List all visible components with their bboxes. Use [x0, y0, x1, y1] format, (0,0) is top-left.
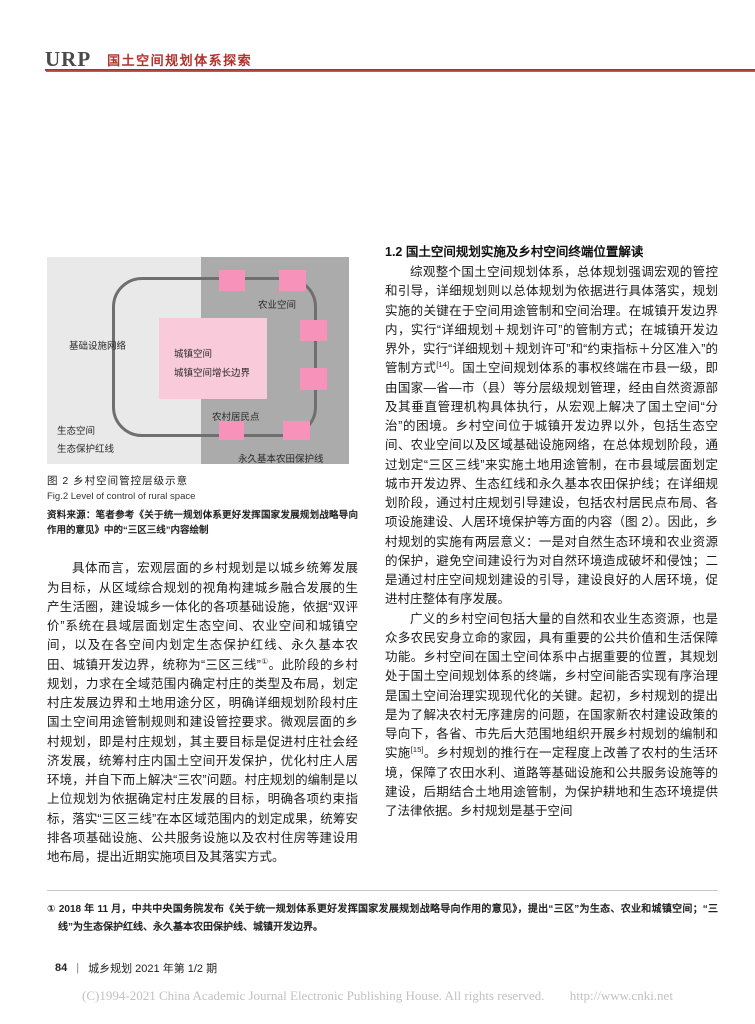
- journal-logo: URP: [45, 50, 91, 71]
- figure-source-note: 资料来源：笔者参考《关于统一规划体系更好发挥国家发展规划战略导向作用的意见》中的…: [47, 508, 358, 538]
- page-number: 84: [55, 962, 67, 974]
- journal-page: URP 国土空间规划体系探索 城镇空间 城镇空间增长边界 农业空间 基础设施网: [0, 0, 755, 1024]
- journal-issue: 城乡规划 2021 年第 1/2 期: [88, 960, 217, 976]
- pink-square: [279, 270, 306, 291]
- agricultural-space-label: 农业空间: [258, 297, 296, 311]
- figure-2: 城镇空间 城镇空间增长边界 农业空间 基础设施网络 农村居民点 生态空间 生态保…: [47, 257, 358, 538]
- ecological-space-label: 生态空间: [57, 423, 95, 437]
- pink-square: [300, 368, 327, 390]
- section-heading: 1.2 国土空间规划实施及乡村空间终端位置解读: [385, 241, 718, 260]
- page-footer: 84 | 城乡规划 2021 年第 1/2 期: [55, 960, 217, 976]
- figure-caption-zh: 图 2 乡村空间管控层级示意: [47, 473, 358, 488]
- figure-caption-en: Fig.2 Level of control of rural space: [47, 491, 358, 502]
- figure-caption: 图 2 乡村空间管控层级示意 Fig.2 Level of control of…: [47, 473, 358, 538]
- copyright-text: (C)1994-2021 China Academic Journal Elec…: [82, 988, 545, 1003]
- pink-square: [219, 270, 245, 291]
- section-title: 国土空间规划体系探索: [107, 50, 252, 71]
- header-rule: [46, 69, 755, 72]
- pink-square: [283, 421, 310, 440]
- pink-square: [219, 421, 244, 440]
- urban-space-box: 城镇空间 城镇空间增长边界: [159, 318, 267, 399]
- right-paragraph-2: 广义的乡村空间包括大量的自然和农业生态资源，也是众多农民安身立命的家园，具有重要…: [385, 610, 718, 822]
- copyright-line: (C)1994-2021 China Academic Journal Elec…: [0, 988, 755, 1004]
- footer-separator: |: [76, 962, 79, 974]
- infrastructure-network-label: 基础设施网络: [69, 338, 126, 352]
- footnote-rule: [47, 890, 718, 891]
- left-paragraph: 具体而言，宏观层面的乡村规划是以城乡统筹发展为目标，从区域综合规划的视角构建城乡…: [47, 559, 358, 867]
- permanent-farmland-label: 永久基本农田保护线: [238, 451, 324, 464]
- page-header: URP 国土空间规划体系探索: [45, 50, 252, 71]
- copyright-url: http://www.cnki.net: [570, 988, 673, 1003]
- ecological-redline-label: 生态保护红线: [57, 441, 114, 455]
- right-paragraph-1: 综观整个国土空间规划体系，总体规划强调宏观的管控和引导，详细规划则以总体规划为依…: [385, 263, 718, 610]
- right-column: 1.2 国土空间规划实施及乡村空间终端位置解读 综观整个国土空间规划体系，总体规…: [385, 241, 718, 821]
- left-column: 城镇空间 城镇空间增长边界 农业空间 基础设施网络 农村居民点 生态空间 生态保…: [47, 257, 358, 867]
- figure-diagram: 城镇空间 城镇空间增长边界 农业空间 基础设施网络 农村居民点 生态空间 生态保…: [47, 257, 349, 464]
- urban-space-label: 城镇空间: [174, 345, 267, 364]
- rural-settlement-label: 农村居民点: [212, 409, 260, 423]
- pink-square: [300, 320, 327, 341]
- urban-growth-boundary-label: 城镇空间增长边界: [174, 364, 267, 383]
- footnote: ① 2018 年 11 月，中共中央国务院发布《关于统一规划体系更好发挥国家发展…: [47, 901, 718, 937]
